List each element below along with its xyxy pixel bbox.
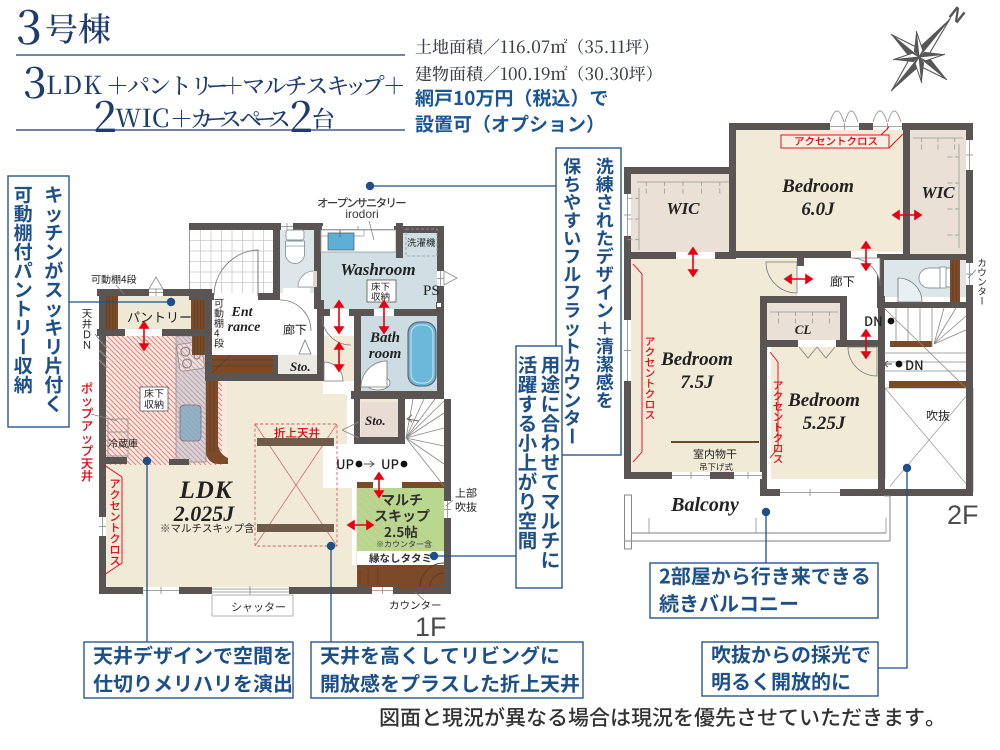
svg-text:rance: rance: [228, 320, 261, 335]
svg-text:7.5J: 7.5J: [680, 372, 714, 393]
svg-text:irodori: irodori: [345, 207, 378, 221]
svg-text:room: room: [369, 346, 402, 362]
svg-text:6.0J: 6.0J: [801, 199, 835, 220]
svg-text:WIC: WIC: [921, 183, 955, 202]
svg-text:2.025J: 2.025J: [173, 501, 236, 526]
svg-text:5.25J: 5.25J: [803, 413, 846, 434]
svg-text:Bedroom: Bedroom: [660, 349, 733, 370]
svg-text:1F: 1F: [415, 612, 447, 642]
svg-text:Bedroom: Bedroom: [787, 390, 860, 411]
svg-text:LDK: LDK: [179, 477, 234, 504]
svg-text:Washroom: Washroom: [340, 260, 415, 279]
svg-text:Bedroom: Bedroom: [781, 176, 854, 197]
svg-text:CL: CL: [795, 322, 812, 337]
svg-text:WIC: WIC: [666, 199, 700, 218]
svg-text:Balcony: Balcony: [670, 494, 739, 516]
svg-text:Sto.: Sto.: [365, 413, 386, 428]
svg-text:Sto.: Sto.: [290, 359, 311, 374]
svg-text:Ent: Ent: [230, 305, 253, 320]
svg-text:PS: PS: [423, 283, 440, 299]
svg-text:2F: 2F: [947, 500, 979, 530]
